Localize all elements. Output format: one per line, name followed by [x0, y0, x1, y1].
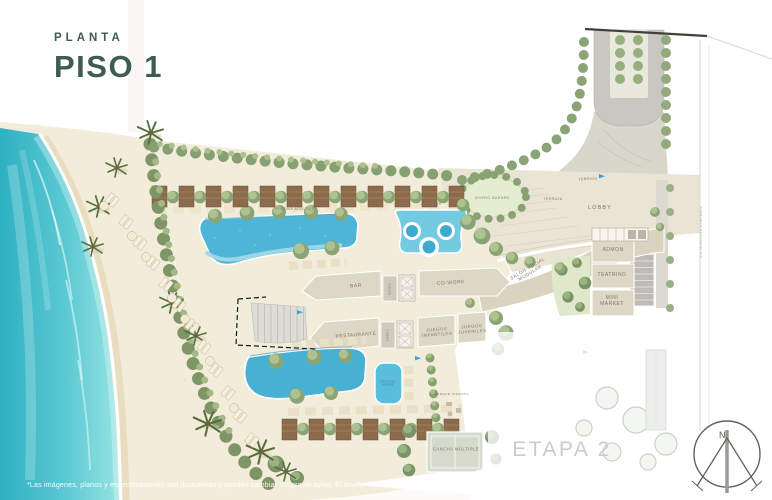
label-vivero-garden: VIVERO GARDEN: [475, 196, 510, 200]
shade-canopy: [251, 303, 307, 343]
lobby-canopy: [592, 228, 648, 241]
label-via-existente: VÍA VEHICULAR EXISTENTE: [700, 206, 704, 258]
label-terraza-lower: TERRAZA: [543, 197, 562, 201]
jacuzzi-pool: [396, 210, 467, 257]
label-mini-market: MINI MARKET: [599, 296, 625, 308]
stair-core-1: [399, 275, 415, 301]
label-banos-1: BAÑOS: [388, 283, 391, 295]
disclaimer-text: *Las imágenes, planos y especificaciones…: [27, 482, 525, 489]
label-cancha-multiple: CANCHA MÚLTIPLE: [433, 448, 479, 453]
site-plan: N PLANTA PISO 1 PISCINA ADULTOS JACUZZIS…: [0, 0, 772, 500]
plan-kicker: PLANTA: [54, 32, 163, 44]
page-title: PISO 1: [54, 49, 163, 85]
label-bar: BAR: [350, 284, 362, 291]
etapa2-building: [646, 350, 666, 430]
label-piscina-ninos: PISCINA NIÑOS: [379, 381, 397, 388]
label-etapa-2: ETAPA 2: [512, 438, 612, 462]
title-block: PLANTA PISO 1: [54, 32, 163, 85]
compass-n-label: N: [719, 430, 726, 440]
label-jacuzzis: JACUZZIS: [420, 202, 441, 206]
label-lobby: LOBBY: [588, 205, 612, 211]
label-parque-infantil: PARQUE INFANTIL: [435, 393, 469, 397]
label-teatrino: TEATRINO: [598, 273, 627, 279]
label-admon: ADMON: [602, 248, 623, 254]
label-banos-2: BAÑOS: [386, 329, 389, 341]
entry-road: [594, 30, 664, 126]
label-juegos-juveniles: JUEGOS JUVENILES: [458, 323, 487, 335]
stair-core-2: [397, 321, 413, 348]
label-piscina-adultos: PISCINA ADULTOS: [275, 207, 314, 211]
label-terraza-upper: TERRAZA: [578, 177, 597, 182]
label-juegos-infantiles: JUEGOS INFANTILES: [422, 326, 453, 338]
